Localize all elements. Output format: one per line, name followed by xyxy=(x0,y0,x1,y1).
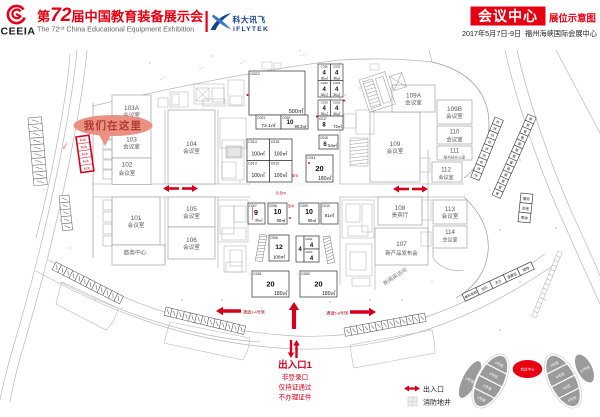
svg-text:新产品发布会: 新产品发布会 xyxy=(385,249,418,257)
svg-text:会议室: 会议室 xyxy=(438,174,453,181)
svg-text:108㎡: 108㎡ xyxy=(273,254,286,260)
svg-text:20: 20 xyxy=(315,164,323,173)
svg-text:113: 113 xyxy=(445,206,456,213)
svg-text:C003: C003 xyxy=(305,250,313,254)
svg-text:5m: 5m xyxy=(292,173,298,178)
svg-text:C025: C025 xyxy=(333,65,341,69)
svg-text:105: 105 xyxy=(186,206,197,213)
svg-text:咨询: 咨询 xyxy=(522,205,530,211)
svg-text:104: 104 xyxy=(186,141,197,148)
svg-text:会议室: 会议室 xyxy=(119,169,136,177)
svg-text:36㎡: 36㎡ xyxy=(333,92,341,97)
svg-text:CEEIA: CEEIA xyxy=(1,26,36,38)
svg-text:我们在这里: 我们在这里 xyxy=(84,119,143,132)
svg-text:会议室: 会议室 xyxy=(123,143,140,151)
svg-text:C008: C008 xyxy=(269,204,277,208)
svg-text:C016: C016 xyxy=(320,136,328,140)
svg-text:90㎡: 90㎡ xyxy=(308,217,318,223)
svg-text:仅持证通过: 仅持证通过 xyxy=(279,383,312,392)
svg-text:114: 114 xyxy=(445,229,455,236)
svg-text:非登录口: 非登录口 xyxy=(282,373,308,382)
svg-text:36㎡: 36㎡ xyxy=(333,111,341,116)
svg-text:通道5-8号馆: 通道5-8号馆 xyxy=(326,310,348,316)
svg-text:C019: C019 xyxy=(321,101,329,105)
svg-text:展位示意图: 展位示意图 xyxy=(549,13,596,24)
svg-text:C022: C022 xyxy=(250,71,260,76)
svg-text:10: 10 xyxy=(305,209,313,216)
svg-text:第72届中国教育装备展示会: 第72届中国教育装备展示会 xyxy=(37,5,204,26)
svg-text:贵宾厅: 贵宾厅 xyxy=(392,211,409,219)
svg-text:111: 111 xyxy=(450,149,460,155)
svg-text:C014: C014 xyxy=(248,140,257,144)
svg-text:103A: 103A xyxy=(124,105,140,112)
svg-text:科大讯飞: 科大讯飞 xyxy=(233,15,266,25)
svg-text:100㎡: 100㎡ xyxy=(252,172,265,179)
svg-text:102: 102 xyxy=(122,162,133,169)
svg-text:出入口: 出入口 xyxy=(423,385,444,394)
svg-text:不办理证件: 不办理证件 xyxy=(279,393,312,402)
svg-text:出入口1: 出入口1 xyxy=(278,359,313,371)
svg-text:会议室: 会议室 xyxy=(183,243,200,251)
svg-text:90.3㎡: 90.3㎡ xyxy=(294,123,306,129)
svg-text:C024: C024 xyxy=(333,81,341,85)
svg-text:72㎡: 72㎡ xyxy=(333,123,343,129)
svg-text:C010: C010 xyxy=(322,204,330,208)
svg-text:20: 20 xyxy=(266,280,274,289)
svg-text:C015: C015 xyxy=(271,140,280,144)
svg-text:9: 9 xyxy=(254,210,258,217)
svg-text:500㎡: 500㎡ xyxy=(289,107,304,115)
svg-text:112: 112 xyxy=(441,167,451,174)
svg-text:会议室: 会议室 xyxy=(183,147,200,155)
svg-text:54㎡: 54㎡ xyxy=(328,142,338,148)
svg-text:36㎡: 36㎡ xyxy=(321,75,329,80)
svg-text:iFLYTEK: iFLYTEK xyxy=(233,26,269,33)
svg-text:12: 12 xyxy=(275,244,283,251)
svg-text:180㎡: 180㎡ xyxy=(274,290,287,297)
svg-text:101: 101 xyxy=(131,215,142,222)
svg-text:C007: C007 xyxy=(249,204,257,208)
svg-text:通道1-4号馆: 通道1-4号馆 xyxy=(243,309,265,315)
svg-text:会议室: 会议室 xyxy=(442,212,459,220)
svg-text:80㎡: 80㎡ xyxy=(255,218,263,223)
svg-text:90㎡: 90㎡ xyxy=(277,217,287,223)
svg-text:会议中心: 会议中心 xyxy=(520,367,535,372)
svg-text:C018: C018 xyxy=(333,101,341,105)
svg-text:36㎡: 36㎡ xyxy=(321,111,329,116)
svg-text:10: 10 xyxy=(287,119,294,126)
svg-text:会议室: 会议室 xyxy=(442,237,457,244)
svg-text:81㎡: 81㎡ xyxy=(325,212,335,218)
svg-text:C012: C012 xyxy=(271,162,280,166)
svg-text:C006: C006 xyxy=(270,236,278,240)
svg-text:110: 110 xyxy=(450,129,460,136)
svg-text:会议中心: 会议中心 xyxy=(478,8,538,24)
svg-text:10: 10 xyxy=(274,209,282,216)
svg-text:20: 20 xyxy=(314,280,322,289)
svg-text:C017: C017 xyxy=(319,117,327,121)
svg-text:C004: C004 xyxy=(305,237,313,241)
svg-text:寄存: 寄存 xyxy=(521,215,529,221)
svg-text:C011: C011 xyxy=(307,156,315,160)
svg-text:会议室: 会议室 xyxy=(446,112,463,120)
svg-text:C002: C002 xyxy=(301,272,310,276)
svg-text:180㎡: 180㎡ xyxy=(322,290,335,297)
svg-text:消防地井: 消防地井 xyxy=(423,398,451,407)
svg-text:会议室: 会议室 xyxy=(128,221,145,229)
svg-text:109A: 109A xyxy=(406,93,422,100)
svg-text:8.5m: 8.5m xyxy=(276,191,286,196)
svg-text:108: 108 xyxy=(395,205,406,212)
svg-text:36㎡: 36㎡ xyxy=(321,92,329,97)
svg-text:秘书处办公室: 秘书处办公室 xyxy=(444,155,466,160)
svg-text:C023: C023 xyxy=(321,81,329,85)
svg-text:106: 106 xyxy=(186,237,197,244)
svg-text:2017年5月7日-9日: 2017年5月7日-9日 xyxy=(462,29,521,38)
svg-text:会议室: 会议室 xyxy=(446,136,463,144)
svg-text:180㎡: 180㎡ xyxy=(318,175,331,182)
svg-text:C021: C021 xyxy=(257,116,265,120)
svg-text:福州海峡国际会展中心: 福州海峡国际会展中心 xyxy=(525,29,597,38)
svg-text:5m: 5m xyxy=(288,204,294,209)
svg-text:36㎡: 36㎡ xyxy=(333,75,341,80)
svg-text:100㎡: 100㎡ xyxy=(252,151,265,158)
svg-text:商务中心: 商务中心 xyxy=(123,249,146,257)
svg-text:C013: C013 xyxy=(248,162,257,166)
svg-text:服务: 服务 xyxy=(523,196,531,202)
svg-text:109B: 109B xyxy=(447,106,462,113)
svg-text:107: 107 xyxy=(396,241,407,248)
svg-text:C001: C001 xyxy=(253,272,262,276)
svg-text:103: 103 xyxy=(126,137,137,144)
svg-text:会议室: 会议室 xyxy=(387,147,404,155)
svg-text:会议室: 会议室 xyxy=(405,99,422,107)
svg-text:100㎡: 100㎡ xyxy=(274,151,287,158)
svg-text:72.1㎡: 72.1㎡ xyxy=(261,122,275,129)
svg-text:100㎡: 100㎡ xyxy=(274,172,287,179)
svg-text:C026: C026 xyxy=(321,65,329,69)
svg-text:会议室: 会议室 xyxy=(183,212,200,220)
svg-text:C009: C009 xyxy=(300,204,308,208)
svg-text:109: 109 xyxy=(390,141,401,148)
